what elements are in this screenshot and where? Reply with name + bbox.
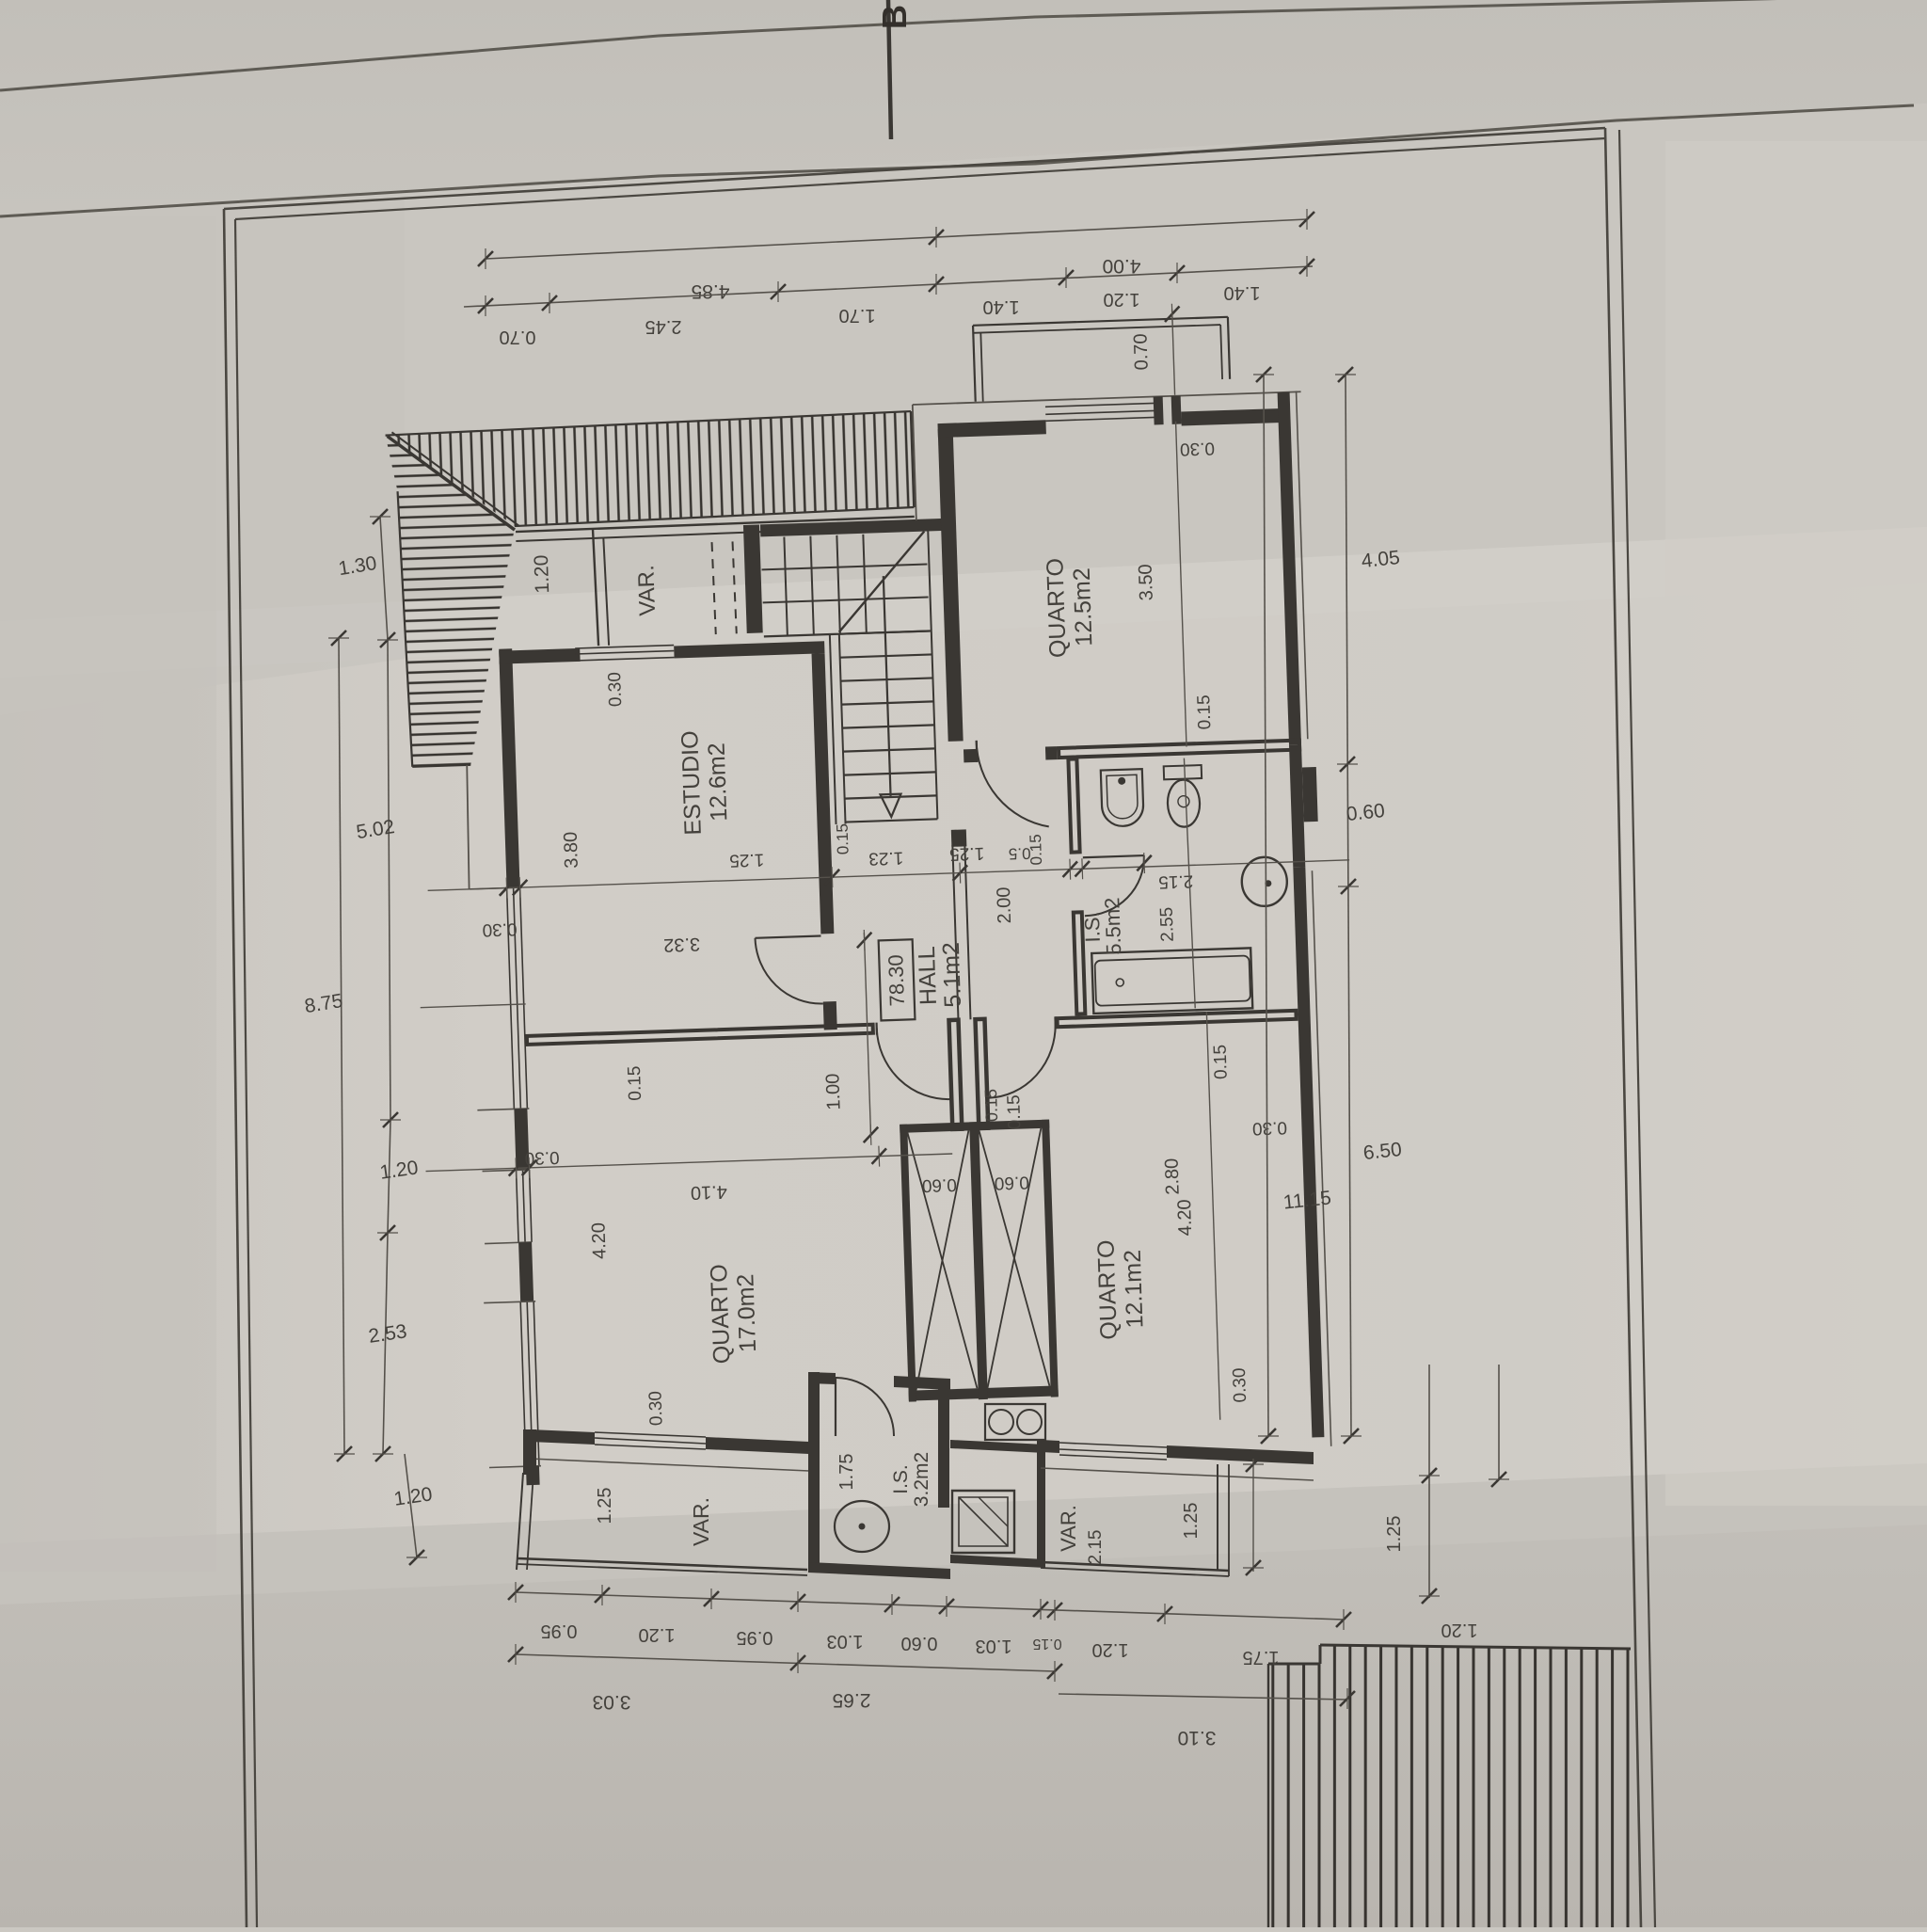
svg-text:2.15: 2.15 [1086, 1530, 1106, 1565]
svg-text:4.85: 4.85 [692, 280, 730, 302]
svg-text:0.60: 0.60 [1346, 800, 1386, 825]
svg-text:1.25: 1.25 [1384, 1516, 1405, 1553]
svg-text:0.30: 0.30 [605, 672, 626, 708]
svg-text:3.32: 3.32 [663, 934, 701, 955]
svg-text:0.15: 0.15 [1027, 834, 1045, 866]
svg-text:3.50: 3.50 [1136, 564, 1157, 601]
svg-text:12.1m2: 12.1m2 [1120, 1250, 1149, 1329]
svg-text:3.03: 3.03 [593, 1691, 631, 1713]
svg-text:2.65: 2.65 [833, 1689, 871, 1711]
svg-text:2.45: 2.45 [645, 316, 682, 337]
svg-text:1.20: 1.20 [639, 1624, 676, 1645]
svg-text:0.30: 0.30 [645, 1391, 666, 1427]
svg-text:I.S.: I.S. [890, 1464, 912, 1494]
svg-text:0.15: 0.15 [1194, 695, 1215, 730]
svg-text:VAR.: VAR. [689, 1497, 713, 1546]
svg-text:VAR.: VAR. [633, 565, 661, 616]
svg-text:1.75: 1.75 [836, 1454, 857, 1491]
svg-text:0.60: 0.60 [994, 1172, 1029, 1192]
svg-text:4.05: 4.05 [1361, 547, 1401, 572]
svg-text:2.15: 2.15 [1158, 870, 1194, 891]
svg-text:QUARTO: QUARTO [706, 1264, 736, 1365]
svg-text:0.15: 0.15 [1032, 1636, 1061, 1652]
svg-text:1.00: 1.00 [822, 1073, 844, 1110]
svg-text:1.20: 1.20 [1441, 1620, 1478, 1640]
svg-text:0.30: 0.30 [1230, 1367, 1250, 1403]
svg-text:4.00: 4.00 [1103, 255, 1141, 277]
svg-text:1.20: 1.20 [531, 554, 553, 594]
svg-text:4.10: 4.10 [691, 1181, 728, 1203]
svg-text:3.10: 3.10 [1178, 1727, 1217, 1748]
svg-text:B: B [875, 5, 914, 29]
svg-text:1.23: 1.23 [868, 848, 904, 869]
svg-text:5.1m2: 5.1m2 [938, 942, 966, 1008]
svg-text:0.95: 0.95 [541, 1621, 578, 1641]
svg-text:12.5m2: 12.5m2 [1069, 567, 1098, 647]
svg-text:1.25: 1.25 [729, 849, 765, 870]
svg-text:17.0m2: 17.0m2 [732, 1273, 761, 1352]
svg-text:1.40: 1.40 [1224, 282, 1261, 303]
svg-text:0.70: 0.70 [1130, 333, 1152, 371]
svg-text:78.30: 78.30 [884, 954, 909, 1007]
svg-text:QUARTO: QUARTO [1092, 1239, 1123, 1340]
svg-text:0.30: 0.30 [1252, 1117, 1288, 1138]
svg-text:0.30: 0.30 [1180, 438, 1216, 458]
svg-text:2.80: 2.80 [1162, 1158, 1184, 1195]
svg-text:6.50: 6.50 [1362, 1139, 1403, 1164]
svg-text:0.15: 0.15 [981, 1089, 1001, 1123]
svg-text:0.15: 0.15 [625, 1065, 645, 1101]
svg-text:0.70: 0.70 [500, 327, 536, 347]
svg-text:1.20: 1.20 [1104, 289, 1140, 310]
svg-text:2.00: 2.00 [994, 886, 1015, 924]
svg-text:0.15: 0.15 [1004, 1094, 1025, 1130]
svg-text:3.2m2: 3.2m2 [911, 1452, 932, 1507]
svg-text:1.03: 1.03 [827, 1631, 864, 1652]
svg-text:4.20: 4.20 [1174, 1199, 1196, 1237]
svg-text:5.5m2: 5.5m2 [1100, 897, 1125, 955]
svg-text:QUARTO: QUARTO [1042, 558, 1072, 659]
svg-text:1.40: 1.40 [983, 296, 1020, 317]
svg-text:3.80: 3.80 [561, 831, 582, 869]
svg-text:1.75: 1.75 [1243, 1647, 1280, 1668]
svg-text:VAR.: VAR. [1057, 1505, 1080, 1552]
svg-text:0.30: 0.30 [482, 918, 518, 939]
svg-text:1.20: 1.20 [1092, 1639, 1129, 1660]
svg-text:1.25: 1.25 [1181, 1503, 1202, 1540]
svg-text:0.60: 0.60 [901, 1633, 938, 1653]
svg-text:1.70: 1.70 [839, 305, 876, 326]
svg-text:0.15: 0.15 [1211, 1045, 1232, 1080]
svg-text:12.6m2: 12.6m2 [704, 742, 733, 822]
svg-text:0.60: 0.60 [921, 1174, 957, 1195]
svg-text:0.95: 0.95 [737, 1627, 773, 1648]
svg-text:1.25: 1.25 [595, 1488, 615, 1525]
svg-text:0.15: 0.15 [834, 823, 852, 855]
svg-text:0.30: 0.30 [524, 1147, 560, 1168]
svg-text:1.25: 1.25 [949, 843, 985, 864]
svg-text:4.20: 4.20 [588, 1222, 610, 1260]
svg-text:1.03: 1.03 [976, 1636, 1012, 1656]
svg-text:ESTUDIO: ESTUDIO [677, 730, 707, 836]
svg-text:2.55: 2.55 [1157, 906, 1178, 942]
